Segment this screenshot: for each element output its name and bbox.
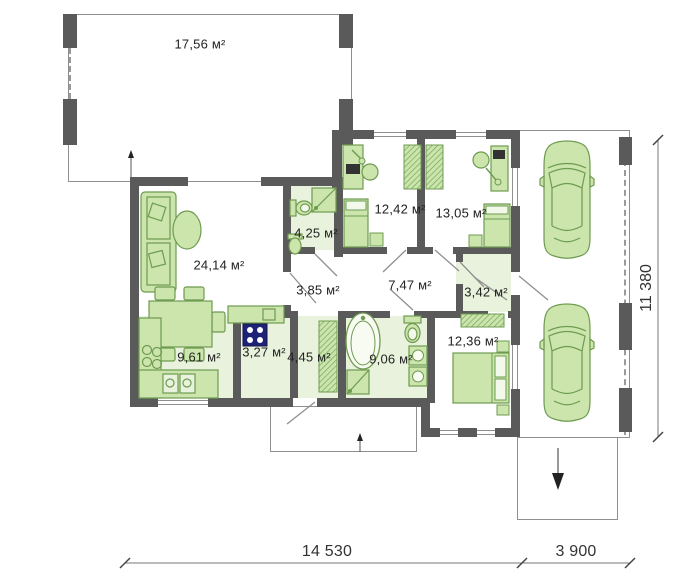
wall-segment [427, 311, 435, 403]
car [540, 304, 594, 421]
window [512, 345, 518, 389]
window [512, 168, 518, 206]
wall-segment [453, 247, 511, 254]
carport-roof-top-line [519, 130, 630, 131]
nightstand [497, 341, 509, 352]
wall-segment [233, 311, 298, 318]
terrace-railing [69, 48, 71, 99]
room-label-bedroom-3: 12,36 м² [447, 334, 498, 349]
room-label-living-room: 24,14 м² [193, 258, 244, 273]
window [158, 400, 208, 405]
wall-segment [130, 177, 139, 407]
room-label-hall: 4,45 м² [287, 350, 331, 365]
carport-column [619, 303, 632, 350]
wall-segment [421, 428, 440, 437]
bed-bedroom-2 [484, 204, 510, 247]
dimension-right-side: 11 380 [638, 264, 656, 312]
terrace-column [63, 14, 77, 48]
window [374, 132, 406, 137]
wall-segment [511, 206, 520, 272]
terrace-column [339, 14, 353, 48]
wall-segment [407, 247, 433, 254]
nightstand [469, 235, 482, 247]
terrace-column [63, 99, 77, 145]
wall-segment [511, 295, 520, 345]
wardrobe [426, 145, 443, 189]
wall-segment [508, 311, 520, 318]
wall-segment [458, 428, 477, 437]
wall-segment [495, 428, 520, 437]
room-label-bathroom-main: 9,06 м² [369, 352, 413, 367]
wall-segment [338, 311, 346, 398]
carport-column [619, 137, 632, 165]
coffee-table [173, 211, 201, 249]
wall-segment [130, 177, 188, 186]
wall-segment [283, 186, 291, 272]
wall-segment [334, 186, 343, 257]
bed-bedroom-1 [344, 199, 368, 247]
dimension-bottom-carport: 3 900 [555, 543, 596, 561]
chair-bedroom-2 [473, 152, 489, 168]
sofa [141, 192, 176, 292]
window [440, 430, 458, 435]
wall-segment [317, 398, 430, 407]
window [477, 430, 495, 435]
wall-segment [208, 398, 293, 407]
terrace-column [339, 99, 353, 145]
dimension-bottom-main: 14 530 [302, 543, 352, 561]
porch-outline [270, 406, 417, 452]
nightstand [370, 233, 383, 246]
terrace-sliding-door [188, 181, 261, 182]
wall-segment [414, 311, 488, 318]
entry-floor [456, 254, 511, 312]
wall-segment [233, 311, 241, 398]
room-label-bedroom-2: 13,05 м² [435, 206, 486, 221]
room-label-bathroom-small: 4,25 м² [294, 226, 338, 241]
room-label-bedroom-1: 12,42 м² [374, 202, 425, 217]
wall-segment [456, 284, 463, 311]
desk-bedroom-2 [486, 146, 508, 191]
room-label-corridor: 7,47 м² [388, 278, 432, 293]
wall-segment [130, 398, 158, 407]
wall-segment [283, 247, 315, 254]
room-label-kitchen: 9,61 м² [177, 350, 221, 365]
floor-plan: 17,56 м² 24,14 м² 4,25 м² 12,42 м² 13,05… [0, 0, 700, 575]
wall-segment [417, 139, 425, 247]
wall-segment [406, 130, 456, 139]
room-label-entry: 3,42 м² [464, 285, 508, 300]
room-label-hallway: 3,85 м² [296, 283, 340, 298]
room-label-terrace: 17,56 м² [174, 37, 225, 52]
room-label-pantry: 3,27 м² [242, 345, 286, 360]
nightstand [497, 405, 509, 415]
driveway-outline [517, 437, 618, 520]
carport-roof-bottom-line [519, 437, 630, 438]
carport-column [619, 388, 632, 432]
chair-bedroom-1 [362, 164, 378, 180]
wall-segment [456, 254, 463, 262]
bed-bedroom-3 [453, 353, 509, 403]
wall-segment [343, 247, 387, 254]
window [456, 132, 486, 137]
wall-segment [511, 130, 520, 168]
car [540, 141, 594, 258]
